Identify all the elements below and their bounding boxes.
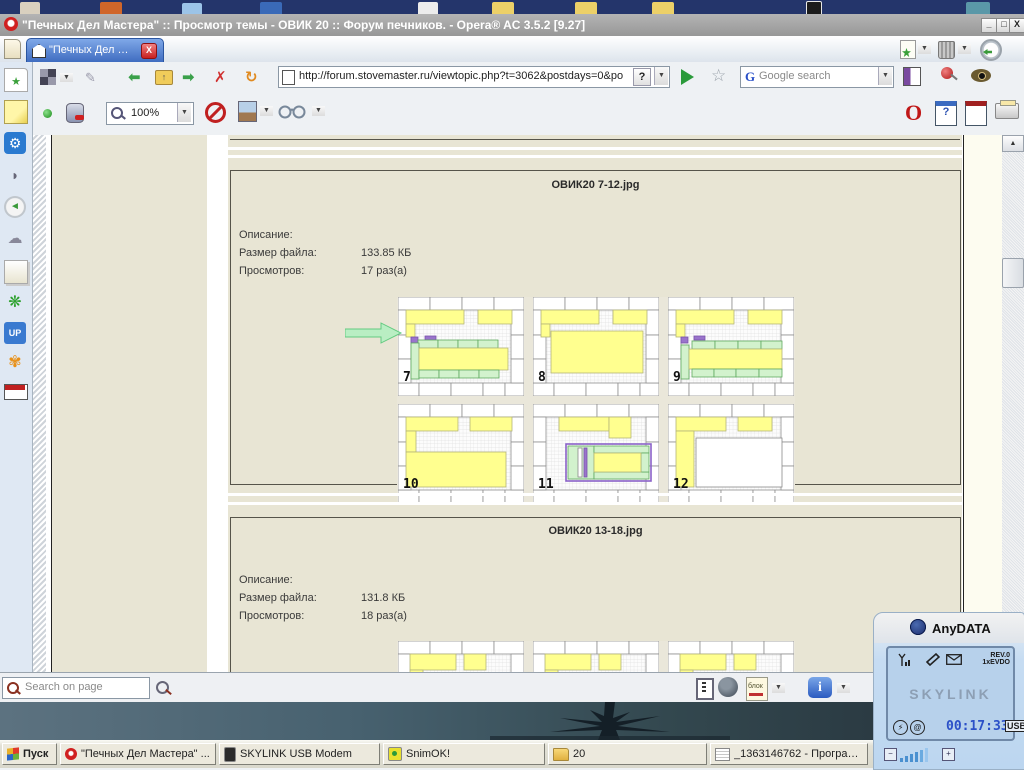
task-label: "Печных Дел Мастера" ... <box>81 748 210 760</box>
brand-label: AnyDATA <box>932 621 991 636</box>
address-url[interactable]: http://forum.stovemaster.ru/viewtopic.ph… <box>299 70 629 82</box>
papers-stack-icon[interactable] <box>4 260 28 284</box>
opera-task-icon <box>65 748 77 760</box>
desktop-icon[interactable] <box>20 2 40 14</box>
image-mode-dropdown-icon[interactable]: ▼ <box>260 106 273 116</box>
field-label: Описание: <box>239 574 293 586</box>
flag-stripe <box>5 385 25 390</box>
attachment-image-grid-2 <box>397 641 795 672</box>
sidebar-panel: ★ ⚙ ◗ ◄ ☁ ❋ UP ✾ <box>0 62 33 672</box>
field-value: 133.85 КБ <box>361 247 411 259</box>
mask-icon[interactable] <box>718 677 738 697</box>
tab-active[interactable]: "Печных Дел М… X <box>26 38 164 62</box>
block-label: блок <box>748 683 763 690</box>
server-icon[interactable] <box>66 103 84 123</box>
globe-icon <box>910 619 926 635</box>
rev-line1: REV.0 <box>976 652 1010 659</box>
field-value: 131.8 КБ <box>361 592 405 604</box>
task-label: SnimOK! <box>406 748 450 760</box>
separator-line <box>228 155 962 158</box>
url-help-button[interactable]: ? <box>633 68 651 86</box>
google-logo-icon: G <box>745 69 755 85</box>
rev-label: REV.0 1xEVDO <box>976 652 1010 666</box>
new-page-icon[interactable] <box>4 39 21 59</box>
brick-course-panel: 9 <box>668 297 794 396</box>
find-bar: Search on page блок ▼ i ▼ <box>0 672 1024 704</box>
hands-icon[interactable]: ☁ <box>4 228 26 250</box>
tab-label: "Печных Дел М… <box>49 44 137 56</box>
pin-needle <box>950 74 957 81</box>
red-mark <box>749 693 763 696</box>
diagram-panel: 9 <box>668 297 794 396</box>
images-off-icon[interactable] <box>205 102 226 123</box>
signal-strength-row: − + <box>884 745 1014 763</box>
find-input[interactable]: Search on page <box>2 677 150 699</box>
field-value: 18 раз(а) <box>361 610 407 622</box>
pushpin-icon[interactable] <box>941 67 953 79</box>
attachment-box-1: ОВИК20 7-12.jpg Описание: Размер файла: … <box>230 170 961 485</box>
screen: { "titlebar": { "title": "\"Печных Дел М… <box>0 0 1024 768</box>
svg-text:7: 7 <box>403 370 411 385</box>
taskbar-button-opera[interactable]: "Печных Дел Мастера" ... <box>60 743 216 765</box>
brick-course-panel: 10 <box>398 404 524 503</box>
svg-text:8: 8 <box>538 370 546 385</box>
stop-icon[interactable]: ✗ <box>214 68 227 86</box>
post-author-column <box>52 135 207 672</box>
start-label: Пуск <box>23 748 48 760</box>
desktop-icon[interactable] <box>492 2 514 14</box>
svg-text:12: 12 <box>673 477 689 492</box>
field-label: Просмотров: <box>239 265 304 277</box>
signal-bars-icon <box>900 746 936 762</box>
block-dropdown-icon[interactable]: ▼ <box>772 683 785 693</box>
magnifier-handle <box>120 114 126 119</box>
desktop-wallpaper <box>0 702 1024 740</box>
image-mode-icon[interactable] <box>238 101 257 122</box>
user-mode-glasses-icon[interactable] <box>278 103 308 120</box>
attachment-box-2: ОВИК20 13-18.jpg Описание: Размер файла:… <box>230 517 961 672</box>
diagram-panel <box>533 641 659 672</box>
at-icon: @ <box>910 720 925 735</box>
find-button-handle <box>165 689 172 695</box>
usb-label: USB <box>1005 720 1024 732</box>
panel-splitter[interactable] <box>33 135 46 672</box>
user-mode-dropdown-icon[interactable]: ▼ <box>312 106 325 116</box>
close-window-icon[interactable] <box>965 101 987 126</box>
tree-silhouette <box>430 702 790 740</box>
star-badge-icon <box>902 48 911 57</box>
desktop-icon[interactable] <box>575 2 597 14</box>
eye-pupil <box>978 72 986 80</box>
desktop-icon[interactable] <box>260 2 282 14</box>
phone-icon <box>926 653 940 666</box>
brick-course-panel <box>533 641 659 672</box>
taskbar-button-folder[interactable]: 20 <box>548 743 707 765</box>
bookmark-star-icon[interactable]: ☆ <box>711 66 726 86</box>
up-arrow-icon[interactable]: UP <box>4 322 26 344</box>
rev-line2: 1xEVDO <box>976 659 1010 666</box>
close-button[interactable]: X <box>1009 18 1024 33</box>
task-label: 20 <box>573 748 585 760</box>
power-icon: ⚡ <box>893 720 908 735</box>
go-button[interactable] <box>681 69 694 85</box>
brick-course-panel: 11 <box>533 404 659 503</box>
page-home-icon <box>282 70 295 85</box>
google-placeholder[interactable]: Google search <box>759 70 871 82</box>
up-folder-icon[interactable]: ↑ <box>155 70 173 85</box>
settings-gear-icon[interactable]: ⚙ <box>4 132 26 154</box>
signal-plus-button[interactable]: + <box>942 748 955 761</box>
widget-lcd: REV.0 1xEVDO SKYLINK ⚡ @ 00:17:33 USB <box>886 646 1015 741</box>
info-dropdown-icon[interactable]: ▼ <box>837 683 850 693</box>
flag-icon[interactable] <box>4 384 28 400</box>
attachment-filename: ОВИК20 13-18.jpg <box>231 525 960 537</box>
signal-antenna-icon <box>894 653 912 667</box>
dots <box>702 682 706 692</box>
brick-course-panel <box>398 641 524 672</box>
block-page-icon[interactable]: блок <box>746 677 768 701</box>
scrollbar-thumb[interactable] <box>1002 258 1024 288</box>
opera-o-icon: O <box>905 100 922 126</box>
trash-icon[interactable] <box>938 41 955 59</box>
brick-course-panel: 12 <box>668 404 794 503</box>
print-icon[interactable] <box>995 103 1019 119</box>
zoom-dropdown-icon[interactable]: ▼ <box>177 103 191 122</box>
task-label: _1363146762 - Програм... <box>734 748 863 760</box>
orange-flower-icon[interactable]: ✾ <box>4 352 26 374</box>
diagram-panel: 11 <box>533 404 659 503</box>
pencil-icon[interactable]: ✎ <box>85 70 101 84</box>
status-dot-icon <box>43 109 52 118</box>
magnifier-handle <box>15 689 21 694</box>
field-label: Размер файла: <box>239 247 317 259</box>
separator-line <box>228 147 962 150</box>
bookmark-dropdown-icon[interactable]: ▼ <box>918 44 931 54</box>
vertical-scrollbar[interactable]: ▲ ▼ <box>1002 135 1024 672</box>
zoom-level: 100% <box>131 107 159 119</box>
download-book-icon[interactable] <box>903 67 921 86</box>
svg-text:11: 11 <box>538 477 554 492</box>
window-titlebar[interactable]: "Печных Дел Мастера" :: Просмотр темы - … <box>0 14 1024 36</box>
diagram-panel <box>398 641 524 672</box>
scroll-up-icon[interactable]: ▲ <box>1002 135 1024 152</box>
connection-time: 00:17:33 <box>946 719 1009 734</box>
paper-out <box>1000 100 1016 106</box>
satellite-dish-icon[interactable]: ◗ <box>4 164 26 186</box>
trash-dropdown-icon[interactable]: ▼ <box>958 44 971 54</box>
separator-line <box>228 502 962 505</box>
panel-toggle-icon[interactable] <box>696 678 714 700</box>
google-dropdown-icon[interactable]: ▼ <box>878 67 892 85</box>
envelope-icon <box>946 654 962 665</box>
notes-icon[interactable] <box>4 100 28 124</box>
start-button[interactable]: Пуск <box>2 743 57 765</box>
folder-task-icon <box>553 748 569 761</box>
tab-bar: "Печных Дел М… X ▼ ▼ <box>0 36 1024 63</box>
address-bar[interactable]: http://forum.stovemaster.ru/viewtopic.ph… <box>278 66 670 88</box>
page-star-icon[interactable]: ★ <box>4 68 28 92</box>
diagram-panel: 10 <box>398 404 524 503</box>
brick-course-panel: 8 <box>533 297 659 396</box>
diagram-panel: 12 <box>668 404 794 503</box>
clock-arrow-icon <box>983 49 992 55</box>
tab-close-icon[interactable]: X <box>141 43 157 59</box>
page-margin-right <box>964 135 1002 672</box>
icq-flower-icon[interactable]: ❋ <box>4 292 26 314</box>
desktop-top-strip <box>0 0 1024 14</box>
eye-icon[interactable] <box>971 69 991 82</box>
attachment-filename: ОВИК20 7-12.jpg <box>231 179 960 191</box>
history-clock-icon[interactable] <box>980 39 1002 61</box>
signal-minus-button[interactable]: − <box>884 748 897 761</box>
field-label: Просмотров: <box>239 610 304 622</box>
modem-widget[interactable]: AnyDATA REV.0 1xEVDO SKYLINK ⚡ @ 00:17:3… <box>873 612 1024 770</box>
opera-logo-icon <box>4 17 18 31</box>
papers-task-icon <box>715 748 730 761</box>
info-icon[interactable]: i <box>808 677 832 698</box>
desktop-icon[interactable] <box>966 2 990 14</box>
zoom-control[interactable]: 100% ▼ <box>106 102 194 125</box>
svg-text:9: 9 <box>673 370 681 385</box>
attachment-image-grid-1: 789101112 <box>397 297 795 503</box>
layout-dropdown-icon[interactable]: ▼ <box>60 73 73 82</box>
windows-logo-icon <box>7 747 19 760</box>
task-label: SKYLINK USB Modem <box>240 748 352 760</box>
widget-logo-band: AnyDATA <box>874 613 1024 643</box>
find-placeholder: Search on page <box>25 681 143 693</box>
diagram-panel <box>668 641 794 672</box>
back-icon[interactable]: ⬅ <box>128 68 141 86</box>
main-toolbar: ▼ ✎ ⬅ ↑ ➡ ✗ ↻ http://forum.stovemaster.r… <box>33 62 1024 93</box>
brick-course-panel: 7 <box>398 297 524 396</box>
taskbar: Пуск "Печных Дел Мастера" ... SKYLINK US… <box>0 740 1024 768</box>
taskbar-button-modem[interactable]: SKYLINK USB Modem <box>219 743 380 765</box>
snimok-task-icon <box>388 747 402 761</box>
diagram-panel: 8 <box>533 297 659 396</box>
history-back-clock-icon[interactable]: ◄ <box>4 196 26 218</box>
page-viewport: ОВИК20 7-12.jpg Описание: Размер файла: … <box>33 135 1024 672</box>
desktop-icon[interactable] <box>652 2 674 14</box>
help-window-icon[interactable]: ? <box>935 101 957 126</box>
taskbar-button-snimok[interactable]: SnimOK! <box>383 743 545 765</box>
window-layout-icon[interactable] <box>40 69 56 85</box>
field-label: Размер файла: <box>239 592 317 604</box>
view-toolbar: 100% ▼ ▼ ▼ O ? <box>33 92 1024 136</box>
svg-text:10: 10 <box>403 477 419 492</box>
diagram-panel: 7 <box>398 297 524 396</box>
desktop-icon[interactable] <box>100 2 122 14</box>
dot <box>392 751 397 756</box>
google-search-box[interactable]: G Google search ▼ <box>740 66 894 88</box>
forward-icon[interactable]: ➡ <box>182 68 195 86</box>
slash <box>208 105 222 119</box>
taskbar-button-program[interactable]: _1363146762 - Програм... <box>710 743 868 765</box>
field-label: Описание: <box>239 229 293 241</box>
previous-box-edge <box>230 139 960 140</box>
home-page-icon <box>32 44 46 58</box>
operator-name: SKYLINK <box>888 686 1013 702</box>
reload-icon[interactable]: ↻ <box>245 68 258 86</box>
window-title: "Печных Дел Мастера" :: Просмотр темы - … <box>22 18 952 32</box>
address-dropdown-icon[interactable]: ▼ <box>654 67 668 85</box>
separator-line <box>228 493 962 496</box>
modem-task-icon <box>224 747 236 762</box>
server-minus-badge <box>75 115 84 120</box>
annotation-arrow-icon <box>345 321 403 345</box>
add-bookmark-icon[interactable] <box>900 40 916 59</box>
minimize-button[interactable]: _ <box>981 18 997 33</box>
brick-course-panel <box>668 641 794 672</box>
field-value: 17 раз(а) <box>361 265 407 277</box>
desktop-icon[interactable] <box>806 1 822 15</box>
